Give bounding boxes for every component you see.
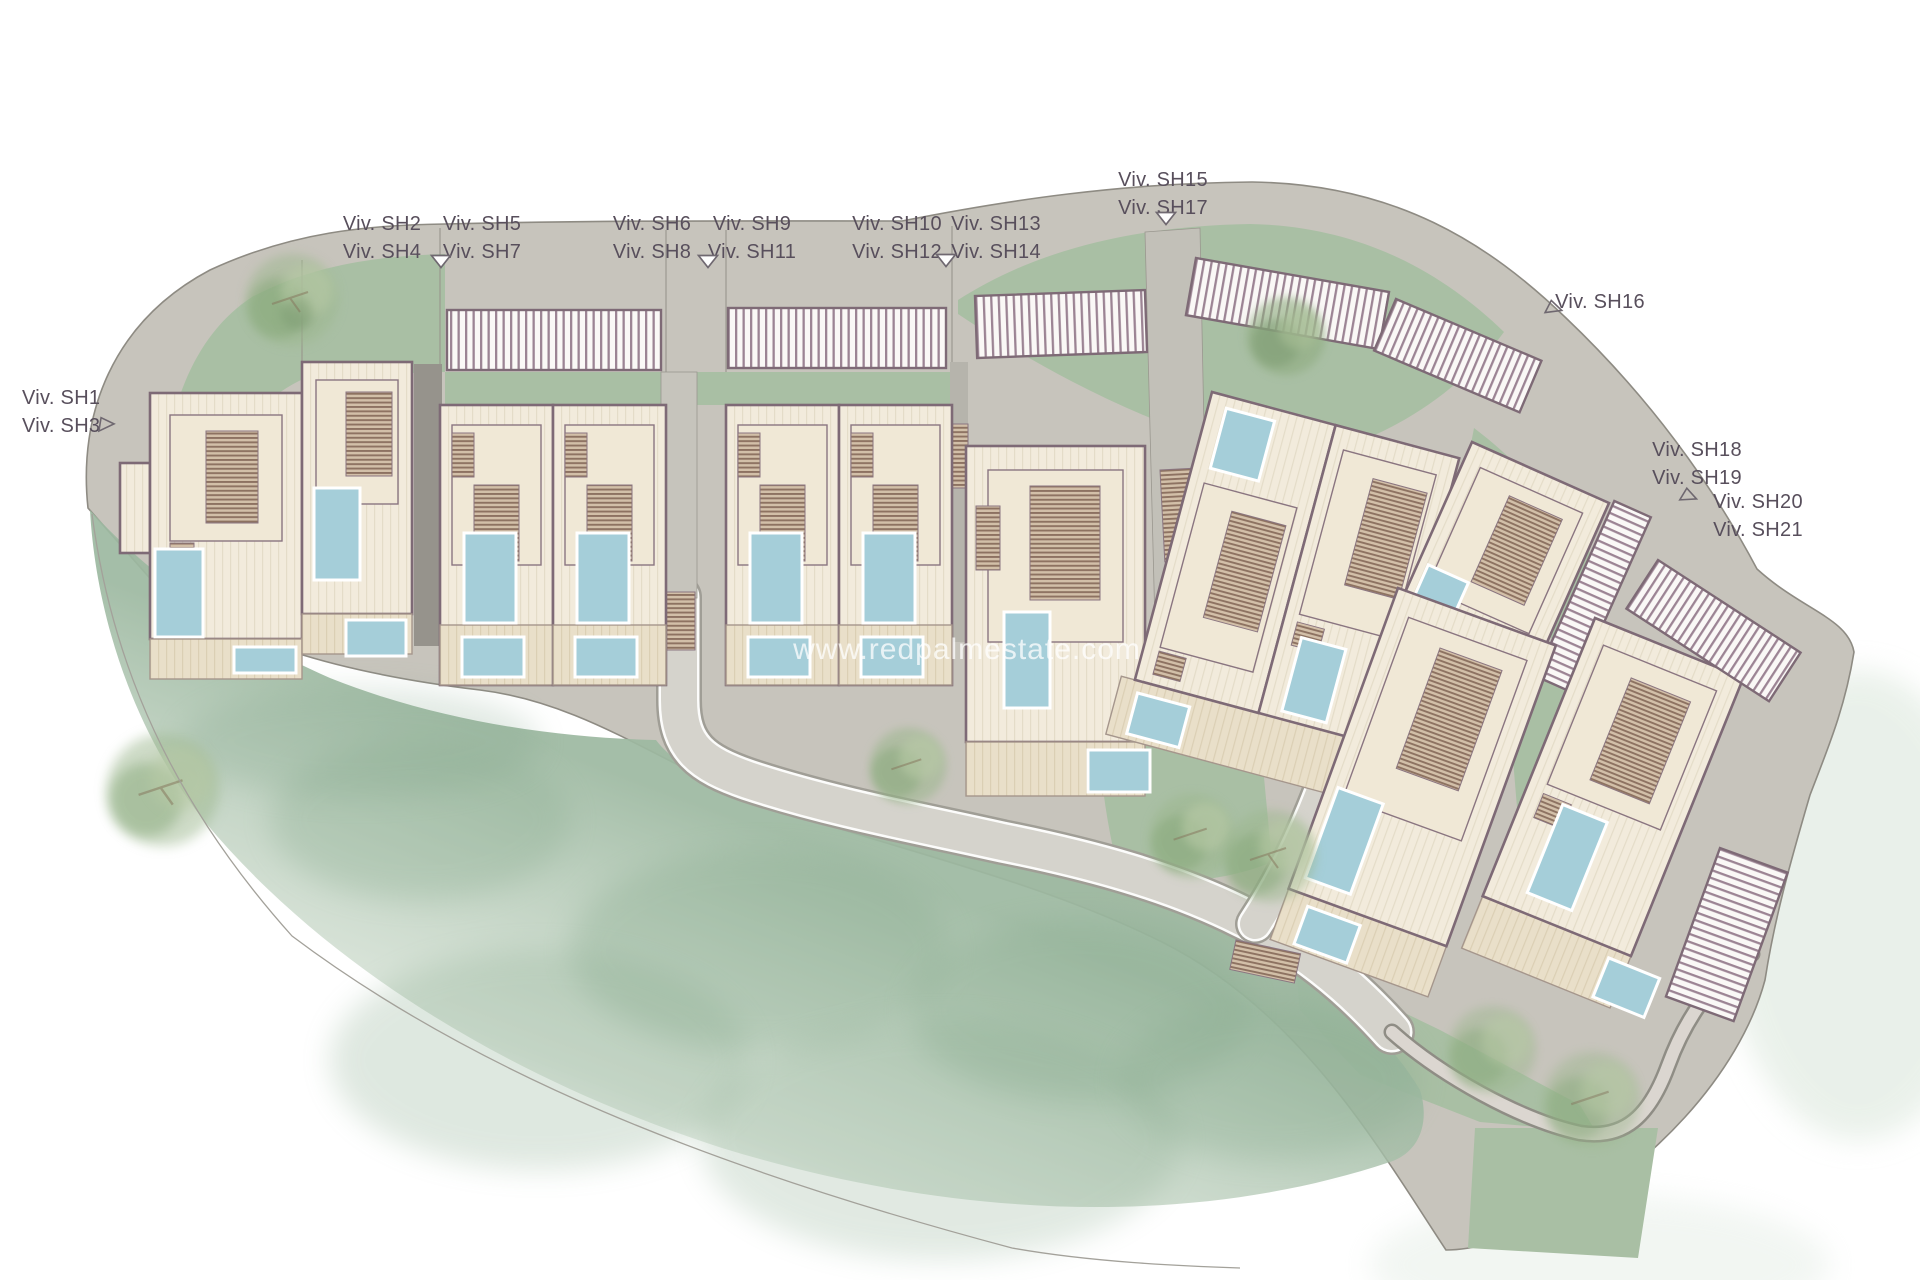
pool: [155, 549, 203, 637]
triangle-down-icon: [696, 253, 720, 270]
label-viv-sh20-sh21: Viv. SH20Viv. SH21: [1713, 488, 1803, 544]
label-viv-sh2-sh4: Viv. SH2Viv. SH4: [343, 210, 421, 266]
triangle-down-icon: [1154, 210, 1178, 227]
label-viv-sh9-sh11: Viv. SH9Viv. SH11: [708, 210, 796, 266]
triangle-outline-icon: [94, 413, 119, 436]
tree: [1247, 297, 1325, 375]
villa-sh13-sh14: [966, 446, 1150, 796]
tree: [1544, 1052, 1640, 1148]
pool: [314, 488, 360, 580]
pool: [234, 647, 296, 673]
label-viv-sh13-sh14: Viv. SH13Viv. SH14: [951, 210, 1041, 266]
pool: [1088, 750, 1150, 792]
label-viv-sh18-sh19: Viv. SH18Viv. SH19: [1652, 436, 1742, 492]
tree: [1448, 1006, 1535, 1093]
label-viv-sh1-sh3: Viv. SH1Viv. SH3: [22, 384, 100, 440]
villa-pair-sh2-sh4-sh5-sh7: [440, 405, 666, 685]
triangle-down-icon: [934, 252, 958, 269]
label-viv-sh5-sh7: Viv. SH5Viv. SH7: [443, 210, 521, 266]
watermark: www.redpalmestate.com: [793, 633, 1141, 667]
tree: [246, 254, 338, 346]
tree: [107, 734, 219, 846]
site-plan-page: Viv. SH1Viv. SH3 Viv. SH2Viv. SH4 Viv. S…: [0, 0, 1920, 1280]
tree: [1150, 794, 1235, 879]
pool: [346, 620, 406, 656]
villa-sh3: [302, 362, 412, 656]
triangle-outline-icon: [1541, 296, 1566, 320]
tree: [870, 728, 946, 804]
label-viv-sh16: Viv. SH16: [1555, 288, 1645, 316]
label-viv-sh10-sh12: Viv. SH10Viv. SH12: [852, 210, 942, 266]
triangle-down-icon: [429, 253, 453, 270]
tree: [1224, 810, 1316, 902]
label-viv-sh6-sh8: Viv. SH6Viv. SH8: [613, 210, 691, 266]
